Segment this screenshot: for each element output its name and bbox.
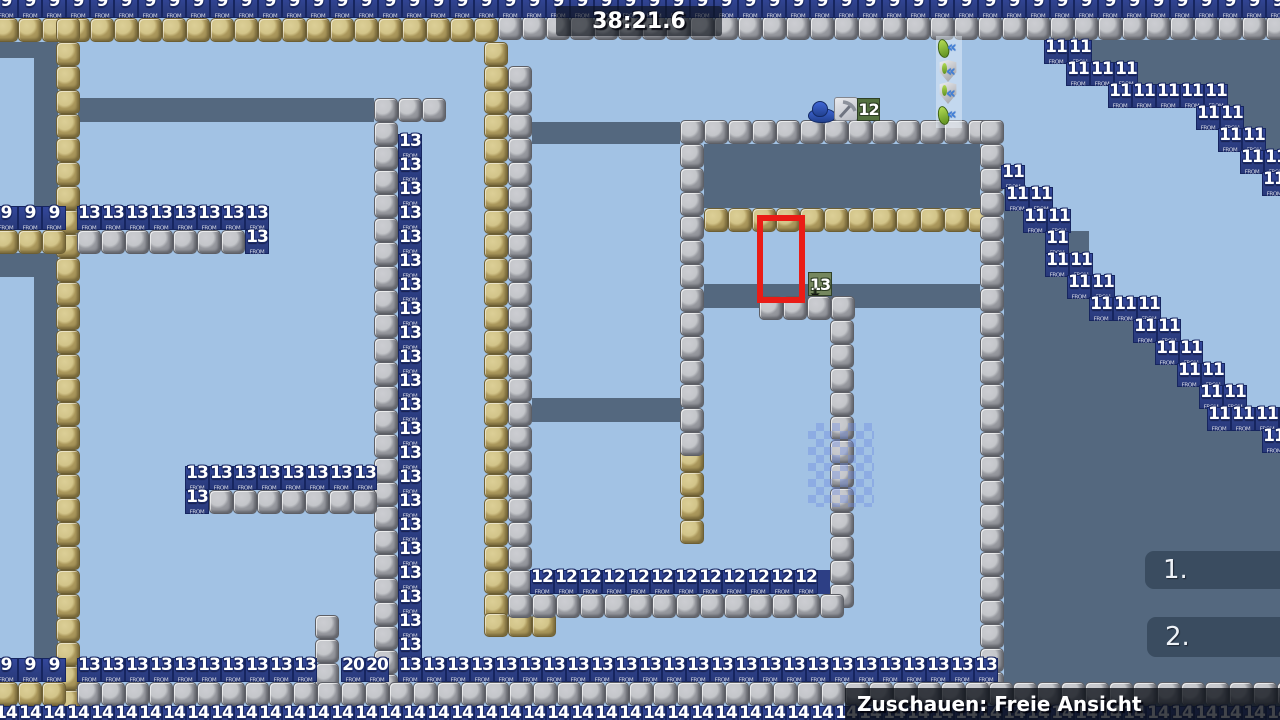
stone-block	[980, 384, 1004, 408]
numbered-block: 13FROM	[614, 658, 638, 682]
stone-block	[830, 320, 854, 344]
block-number: 9	[0, 203, 17, 223]
numbered-block: 9FROM	[834, 0, 858, 18]
block-subtext: FROM	[453, 13, 471, 19]
numbered-block: 13FROM	[149, 206, 173, 230]
sand-block	[56, 474, 80, 498]
block-subtext: FROM	[141, 13, 159, 19]
numbered-block: 11FROM	[1155, 341, 1179, 365]
block-number: 12	[651, 567, 673, 587]
block-number: 9	[475, 0, 497, 11]
block-number: 13	[399, 155, 421, 175]
block-number: 13	[711, 655, 733, 675]
numbered-block: 9FROM	[426, 0, 450, 18]
block-number: 14	[235, 703, 257, 720]
numbered-block: 14FROM	[618, 706, 642, 720]
sand-block	[378, 18, 402, 42]
block-subtext: FROM	[809, 677, 827, 683]
block-subtext: FROM	[525, 13, 543, 19]
block-number: 13	[807, 655, 829, 675]
block-subtext: FROM	[309, 13, 327, 19]
numbered-block: 9FROM	[90, 0, 114, 18]
block-subtext: FROM	[213, 13, 231, 19]
sand-block	[56, 402, 80, 426]
numbered-block: 13FROM	[590, 658, 614, 682]
numbered-block: 9FROM	[258, 0, 282, 18]
stone-block	[831, 296, 855, 320]
numbered-block: 9FROM	[1242, 0, 1266, 18]
block-number: 13	[174, 655, 196, 675]
stone-block	[980, 504, 1004, 528]
stone-block	[980, 408, 1004, 432]
numbered-block: 14FROM	[18, 706, 42, 720]
block-subtext: FROM	[737, 677, 755, 683]
numbered-block: 14FROM	[546, 706, 570, 720]
stone-block	[680, 408, 704, 432]
block-subtext: FROM	[837, 13, 855, 19]
numbered-block: 9FROM	[1170, 0, 1194, 18]
stone-block	[221, 230, 245, 254]
block-number: 9	[211, 0, 233, 11]
background-region	[34, 58, 58, 206]
numbered-block: 9FROM	[906, 0, 930, 18]
block-number: 11	[1045, 37, 1067, 57]
block-subtext: FROM	[1245, 13, 1263, 19]
block-number: 11	[1002, 162, 1024, 182]
stone-block	[374, 98, 398, 122]
block-number: 14	[211, 703, 233, 720]
numbered-block: 9FROM	[522, 0, 546, 18]
stone-block	[980, 552, 1004, 576]
stone-block	[398, 98, 422, 122]
block-number: 13	[222, 203, 244, 223]
block-number: 9	[1267, 0, 1280, 11]
block-subtext: FROM	[200, 677, 218, 683]
block-number: 12	[771, 567, 793, 587]
block-number: 11	[1178, 360, 1200, 380]
stone-block	[796, 594, 820, 618]
background-region	[532, 122, 680, 144]
block-number: 9	[187, 0, 209, 11]
block-number: 9	[1123, 0, 1145, 11]
stone-block	[680, 336, 704, 360]
block-subtext: FROM	[45, 225, 63, 231]
stone-block	[980, 360, 1004, 384]
stone-block	[532, 594, 556, 618]
numbered-block: 9FROM	[354, 0, 378, 18]
numbered-block: 13FROM	[329, 466, 353, 490]
block-subtext: FROM	[1005, 13, 1023, 19]
numbered-block: 14FROM	[282, 706, 306, 720]
block-number: 14	[523, 703, 545, 720]
numbered-block: 13FROM	[566, 658, 590, 682]
stone-block	[800, 120, 824, 144]
numbered-block: 12FROM	[722, 570, 746, 594]
sand-block	[728, 208, 752, 232]
block-number: 11	[1221, 103, 1243, 123]
stone-block	[680, 144, 704, 168]
mini-cursor-icon: ⊥	[811, 290, 818, 297]
stone-block	[752, 120, 776, 144]
stone-block	[824, 120, 848, 144]
numbered-block: 14FROM	[90, 706, 114, 720]
numbered-block: 12FROM	[626, 570, 650, 594]
block-number: 13	[246, 655, 268, 675]
ghost-block-preview	[808, 423, 874, 507]
block-subtext: FROM	[176, 225, 194, 231]
block-subtext: FROM	[761, 677, 779, 683]
numbered-block: 9FROM	[210, 0, 234, 18]
block-number: 12	[747, 567, 769, 587]
game-viewport[interactable]: 9FROM9FROM9FROM9FROM9FROM9FROM9FROM9FROM…	[0, 0, 1280, 720]
numbered-block: 13FROM	[173, 658, 197, 682]
block-number: 12	[579, 567, 601, 587]
block-number: 13	[399, 299, 421, 319]
block-number: 13	[615, 655, 637, 675]
block-number: 14	[307, 703, 329, 720]
numbered-block: 14FROM	[162, 706, 186, 720]
numbered-block: 14FROM	[474, 706, 498, 720]
stone-block	[1266, 16, 1280, 40]
stone-block	[830, 344, 854, 368]
sand-block	[56, 306, 80, 330]
block-subtext: FROM	[605, 589, 623, 595]
block-number: 13	[399, 203, 421, 223]
stone-block	[233, 490, 257, 514]
launcher-item-icon: «	[936, 37, 960, 59]
numbered-block: 12FROM	[698, 570, 722, 594]
stone-block	[374, 482, 398, 506]
block-number: 11	[1200, 382, 1222, 402]
numbered-block: 9FROM	[450, 0, 474, 18]
stone-block	[522, 16, 546, 40]
numbered-block: 13FROM	[782, 658, 806, 682]
stone-block	[374, 410, 398, 434]
block-subtext: FROM	[1221, 147, 1239, 153]
block-number: 13	[495, 655, 517, 675]
stone-block	[680, 120, 704, 144]
stone-block	[807, 296, 831, 320]
stone-block	[374, 242, 398, 266]
block-subtext: FROM	[1077, 13, 1095, 19]
stone-block	[1242, 16, 1266, 40]
block-number: 13	[447, 655, 469, 675]
numbered-block: 11FROM	[1066, 62, 1090, 86]
stone-block	[810, 16, 834, 40]
stone-block	[374, 506, 398, 530]
sand-block	[56, 426, 80, 450]
block-number: 9	[43, 203, 65, 223]
stone-block	[374, 458, 398, 482]
block-number: 9	[763, 0, 785, 11]
sand-block	[484, 354, 508, 378]
spectate-status-text: Zuschauen: Freie Ansicht	[845, 692, 1142, 716]
block-number: 13	[399, 275, 421, 295]
block-number: 13	[951, 655, 973, 675]
block-number: 9	[1147, 0, 1169, 11]
block-number: 13	[399, 515, 421, 535]
numbered-block: 14FROM	[42, 706, 66, 720]
stone-block	[508, 162, 532, 186]
stone-block	[786, 16, 810, 40]
block-number: 11	[1070, 250, 1092, 270]
block-subtext: FROM	[861, 13, 879, 19]
stone-block	[508, 570, 532, 594]
block-number: 11	[1265, 147, 1280, 167]
stone-block	[980, 336, 1004, 360]
block-subtext: FROM	[284, 485, 302, 491]
block-number: 9	[115, 0, 137, 11]
block-number: 11	[1205, 81, 1227, 101]
stone-block	[704, 120, 728, 144]
block-number: 11	[1263, 169, 1280, 189]
stone-block	[508, 66, 532, 90]
block-number: 9	[19, 655, 41, 675]
block-subtext: FROM	[1125, 13, 1143, 19]
block-number: 13	[423, 655, 445, 675]
numbered-block: 14FROM	[306, 706, 330, 720]
block-subtext: FROM	[1265, 448, 1280, 454]
stone-block	[762, 16, 786, 40]
stone-block	[980, 216, 1004, 240]
block-subtext: FROM	[401, 677, 419, 683]
numbered-block: 13FROM	[305, 466, 329, 490]
rank-panel-1-label: 1.	[1163, 555, 1188, 585]
stone-block	[422, 98, 446, 122]
stone-block	[980, 240, 1004, 264]
numbered-block: 13FROM	[269, 658, 293, 682]
block-subtext: FROM	[1026, 228, 1044, 234]
numbered-block: 13FROM	[77, 206, 101, 230]
timer-text: 38:21.6	[556, 6, 722, 36]
background-region	[78, 98, 374, 122]
sand-block	[484, 114, 508, 138]
stone-block	[508, 234, 532, 258]
background-region	[0, 42, 58, 58]
block-number: 9	[235, 0, 257, 11]
numbered-block: 14FROM	[354, 706, 378, 720]
stone-block	[896, 120, 920, 144]
block-number: 14	[43, 703, 65, 720]
block-subtext: FROM	[425, 677, 443, 683]
numbered-block: 14FROM	[762, 706, 786, 720]
block-subtext: FROM	[21, 225, 39, 231]
stone-block	[149, 230, 173, 254]
background-region	[532, 398, 682, 422]
block-number: 14	[811, 703, 833, 720]
block-subtext: FROM	[1159, 103, 1177, 109]
block-subtext: FROM	[533, 589, 551, 595]
numbered-block: 9FROM	[402, 0, 426, 18]
block-subtext: FROM	[200, 225, 218, 231]
numbered-block: 9FROM	[0, 0, 18, 18]
block-number: 13	[399, 587, 421, 607]
stone-block	[680, 168, 704, 192]
numbered-block: 9FROM	[1002, 0, 1026, 18]
sand-block	[56, 354, 80, 378]
sand-block	[56, 282, 80, 306]
numbered-block: 9FROM	[1218, 0, 1242, 18]
block-subtext: FROM	[261, 13, 279, 19]
stone-block	[508, 186, 532, 210]
block-number: 13	[543, 655, 565, 675]
numbered-block: 12FROM	[674, 570, 698, 594]
block-number: 9	[931, 0, 953, 11]
sand-block	[896, 208, 920, 232]
stone-block	[1002, 16, 1026, 40]
block-subtext: FROM	[593, 677, 611, 683]
numbered-block: 14FROM	[186, 706, 210, 720]
block-subtext: FROM	[521, 677, 539, 683]
stone-block	[374, 338, 398, 362]
sand-block	[56, 570, 80, 594]
stone-block	[980, 264, 1004, 288]
block-number: 14	[619, 703, 641, 720]
sand-block	[484, 138, 508, 162]
numbered-block: 14FROM	[738, 706, 762, 720]
block-number: 12	[531, 567, 553, 587]
block-number: 9	[139, 0, 161, 11]
block-number: 13	[783, 655, 805, 675]
stone-block	[724, 594, 748, 618]
block-number: 9	[859, 0, 881, 11]
sand-block	[114, 18, 138, 42]
stone-block	[508, 522, 532, 546]
block-subtext: FROM	[789, 13, 807, 19]
block-subtext: FROM	[104, 677, 122, 683]
block-number: 13	[246, 227, 268, 247]
numbered-block: 11FROM	[1262, 429, 1280, 453]
block-number: 13	[186, 487, 208, 507]
block-number: 9	[331, 0, 353, 11]
block-number: 14	[91, 703, 113, 720]
numbered-block: 13FROM	[101, 658, 125, 682]
stone-block	[374, 626, 398, 650]
block-subtext: FROM	[749, 589, 767, 595]
timer-panel: 38:21.6	[556, 6, 722, 36]
numbered-block: 9FROM	[954, 0, 978, 18]
pickaxe-icon	[835, 98, 859, 122]
block-subtext: FROM	[725, 589, 743, 595]
stone-block	[173, 230, 197, 254]
block-number: 9	[283, 0, 305, 11]
numbered-block: 13FROM	[422, 658, 446, 682]
block-number: 9	[43, 655, 65, 675]
block-number: 12	[675, 567, 697, 587]
stone-block	[257, 490, 281, 514]
background-region	[704, 144, 980, 208]
stone-block	[680, 384, 704, 408]
stone-block	[882, 16, 906, 40]
block-subtext: FROM	[1047, 59, 1065, 65]
sand-block	[90, 18, 114, 42]
numbered-block: 12FROM	[554, 570, 578, 594]
block-subtext: FROM	[1048, 272, 1066, 278]
block-number: 13	[519, 655, 541, 675]
block-number: 13	[234, 463, 256, 483]
stone-block	[848, 120, 872, 144]
numbered-block: 9FROM	[882, 0, 906, 18]
block-subtext: FROM	[1210, 426, 1228, 432]
numbered-block: 14FROM	[570, 706, 594, 720]
stone-block	[980, 624, 1004, 648]
numbered-block: 13FROM	[734, 658, 758, 682]
stone-block	[680, 240, 704, 264]
block-number: 11	[1158, 316, 1180, 336]
sand-block	[402, 18, 426, 42]
stone-block	[374, 578, 398, 602]
block-number: 11	[1048, 206, 1070, 226]
block-number: 9	[1027, 0, 1049, 11]
numbered-block: 13FROM	[221, 658, 245, 682]
numbered-block: 13FROM	[902, 658, 926, 682]
sand-block	[258, 18, 282, 42]
stone-block	[978, 16, 1002, 40]
stone-block	[1122, 16, 1146, 40]
numbered-block: 14FROM	[714, 706, 738, 720]
block-number: 13	[399, 131, 421, 151]
block-number: 13	[975, 655, 997, 675]
numbered-block: 14FROM	[522, 706, 546, 720]
block-number: 14	[163, 703, 185, 720]
sand-block	[138, 18, 162, 42]
block-number: 13	[198, 655, 220, 675]
block-number: 13	[174, 203, 196, 223]
block-subtext: FROM	[1173, 13, 1191, 19]
block-subtext: FROM	[1197, 13, 1215, 19]
numbered-block: 12FROM	[650, 570, 674, 594]
rank-panel-2[interactable]: 2.	[1147, 617, 1280, 657]
block-subtext: FROM	[80, 677, 98, 683]
numbered-block: 14FROM	[234, 706, 258, 720]
block-number: 13	[222, 655, 244, 675]
block-subtext: FROM	[93, 13, 111, 19]
numbered-block: 14FROM	[450, 706, 474, 720]
block-number: 13	[567, 655, 589, 675]
block-number: 9	[739, 0, 761, 11]
stone-block	[772, 594, 796, 618]
block-subtext: FROM	[332, 485, 350, 491]
block-number: 9	[19, 203, 41, 223]
sand-block	[354, 18, 378, 42]
block-number: 14	[283, 703, 305, 720]
sand-block	[484, 258, 508, 282]
block-number: 14	[571, 703, 593, 720]
block-subtext: FROM	[701, 589, 719, 595]
block-subtext: FROM	[909, 13, 927, 19]
numbered-block: 9FROM	[114, 0, 138, 18]
block-number: 14	[547, 703, 569, 720]
numbered-block: 14FROM	[498, 706, 522, 720]
stone-block	[980, 456, 1004, 480]
block-number: 9	[907, 0, 929, 11]
block-subtext: FROM	[237, 13, 255, 19]
numbered-block: 9FROM	[42, 0, 66, 18]
block-subtext: FROM	[981, 13, 999, 19]
target-number-marker: 13⊥	[808, 272, 832, 296]
block-number: 20	[366, 655, 388, 675]
block-number: 14	[331, 703, 353, 720]
block-number: 11	[1030, 184, 1052, 204]
block-number: 13	[399, 347, 421, 367]
spectate-status-bar: Zuschauen: Freie Ansicht	[845, 688, 1280, 720]
rank-panel-1[interactable]: 1.	[1145, 551, 1280, 589]
stone-block	[980, 480, 1004, 504]
block-number: 14	[475, 703, 497, 720]
block-number: 14	[691, 703, 713, 720]
numbered-block: 14FROM	[810, 706, 834, 720]
stone-block	[906, 16, 930, 40]
